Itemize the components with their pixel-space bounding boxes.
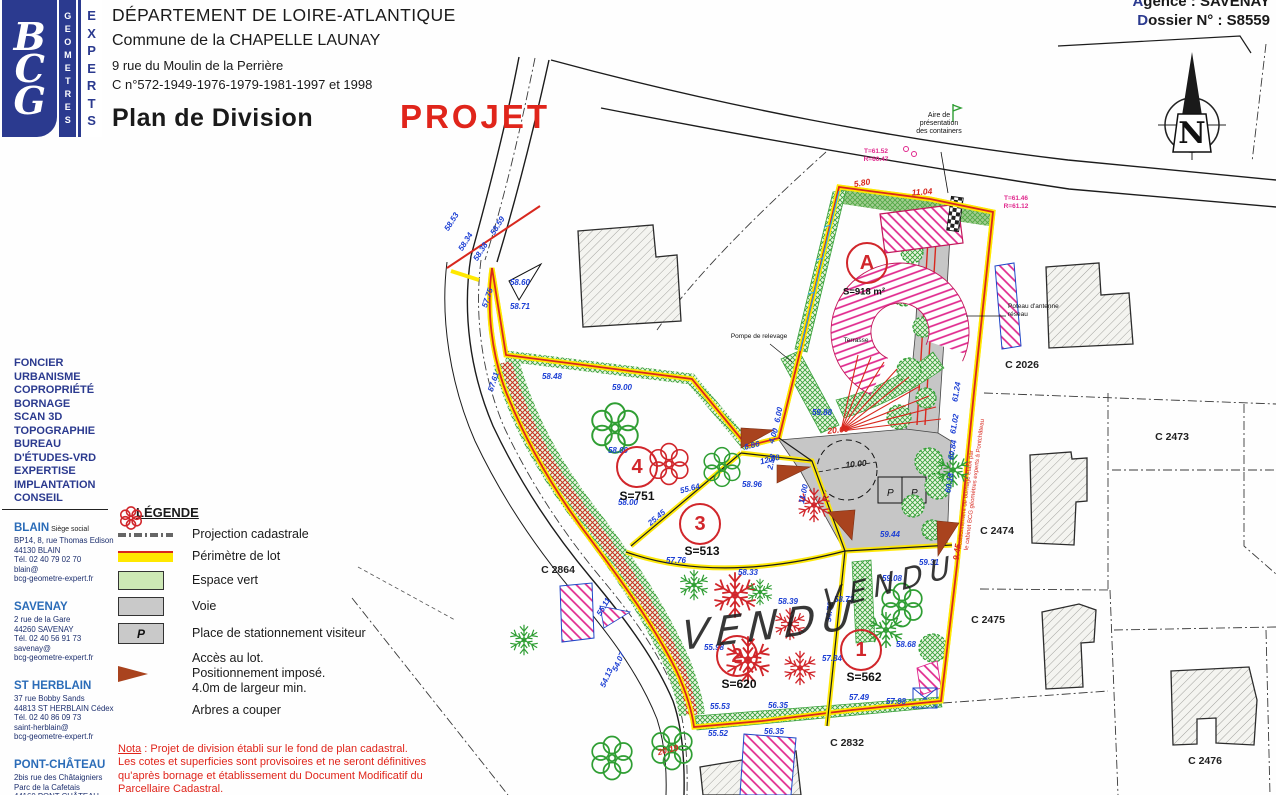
dimension-label: 59.88 [812, 409, 832, 417]
office-address-line: 37 rue Bobby Sands [14, 694, 114, 704]
sidebar-divider [2, 509, 108, 510]
legend-swatch-road [118, 597, 176, 616]
legend-item-label: Espace vert [192, 573, 258, 588]
parcel-label: C 2832 [830, 737, 864, 749]
parcel-label: C 2476 [1188, 755, 1222, 767]
logo-geometres-letter: R [65, 88, 72, 101]
legend-item: Espace vert [118, 571, 378, 590]
lot-number-3: 3 [679, 503, 721, 545]
nota-block: Nota : Projet de division établi sur le … [118, 729, 454, 795]
office-name: PONT-CHÂTEAU [14, 755, 114, 773]
site-address: 9 rue du Moulin de la Perrière [112, 58, 672, 73]
logo-geometres-letter: S [65, 114, 71, 127]
containers-area-label: Aire de présentation des containers [903, 112, 975, 136]
dimension-label: 61.24 [951, 381, 962, 402]
sidebar-service-item: SCAN 3D [14, 411, 114, 425]
legend-item-label: Place de stationnement visiteur [192, 626, 366, 641]
office-address-line: savenay@ [14, 644, 114, 654]
office-address-line: 44813 ST HERBLAIN Cédex [14, 704, 114, 714]
lot-number-A: A [846, 242, 888, 284]
office-address-line: bcg-geometre-expert.fr [14, 732, 114, 742]
lot-number-1: 1 [840, 629, 882, 671]
agency-label: Agence : SAVENAY [1132, 0, 1270, 10]
dimension-label: 5.80 [853, 177, 871, 188]
dimension-label: 20.19 [657, 743, 680, 756]
legend-item-label: Voie [192, 599, 216, 614]
office-address-line: 2bis rue des Châtaigniers [14, 773, 114, 783]
logo-geometres: GEOMETRES [59, 0, 76, 137]
dimension-label: 58.33 [738, 569, 758, 577]
dimension-label: R=61.12 [1004, 204, 1029, 211]
logo-geometres-letter: E [65, 23, 71, 36]
dimension-label: 55.53 [710, 703, 730, 711]
case-info: Agence : SAVENAY Dossier N° : S8559 [1132, 0, 1270, 31]
logo-experts: EXPERTS [78, 0, 102, 137]
office-address-line: bcg-geometre-expert.fr [14, 653, 114, 663]
dimension-label: 58.60 [510, 279, 530, 287]
parcel-label: C 2026 [1005, 359, 1039, 371]
office-address-line: bcg-geometre-expert.fr [14, 574, 114, 584]
legend-item: Projection cadastrale [118, 527, 378, 542]
office-address-line: 44130 BLAIN [14, 546, 114, 556]
office-address-line: 44260 SAVENAY [14, 625, 114, 635]
lot-area-label: S=751 [619, 489, 654, 503]
dimension-label: 57.76 [666, 557, 686, 565]
parcel-label: C 2474 [980, 525, 1014, 537]
dimension-label: 6.86 [743, 440, 760, 452]
bcg-logo: B C G GEOMETRES EXPERTS [2, 0, 102, 137]
dimension-label: 57.34 [822, 655, 842, 663]
dimension-label: 4.00 [768, 427, 780, 444]
legend-swatch-green [118, 571, 176, 590]
logo-geometres-letter: E [65, 62, 71, 75]
dossier-number: Dossier N° : S8559 [1132, 12, 1270, 29]
sidebar-service-item: D'ÉTUDES-VRD [14, 452, 114, 466]
vendu-annotation: VENDU [822, 548, 959, 618]
sidebar-service-item: IMPLANTATION [14, 479, 114, 493]
office-address-line: Parc de la Cafetais [14, 783, 114, 793]
logo-experts-letter: X [87, 25, 96, 43]
logo-geometres-letter: G [64, 10, 71, 23]
dimension-label: 20.00 [827, 425, 849, 436]
dimension-label: 58.38 [472, 241, 489, 262]
sidebar-service-item: BUREAU [14, 438, 114, 452]
sidebar-service-item: TOPOGRAPHIE [14, 425, 114, 439]
dimension-label: 58.48 [542, 373, 562, 381]
terrasse-label: Terrasse [836, 337, 876, 345]
office-address-line: blain@ [14, 565, 114, 575]
dimension-label: 58.34 [457, 231, 474, 252]
office-address-line: BP14, 8, rue Thomas Edison [14, 536, 114, 546]
office-address-line: saint-herblain@ [14, 723, 114, 733]
sidebar-service-item: FONCIER [14, 357, 114, 371]
logo-experts-letter: R [87, 77, 96, 95]
logo-experts-letter: E [87, 60, 96, 78]
commune-title: Commune de la CHAPELLE LAUNAY [112, 32, 672, 50]
lot-area-label: S=513 [684, 544, 719, 558]
legend-item-label: Périmètre de lot [192, 549, 280, 564]
pompe-label: Pompe de relevage [724, 333, 794, 341]
legend-title: LÉGENDE [136, 505, 378, 520]
dimension-label: 58.53 [443, 211, 460, 232]
department-title: DÉPARTEMENT DE LOIRE-ATLANTIQUE [112, 5, 672, 26]
cadastre-refs: C n°572-1949-1976-1979-1981-1997 et 1998 [112, 77, 672, 92]
dimension-label: 55.52 [708, 730, 728, 738]
dimension-label: 57.98 [886, 698, 906, 706]
office-address-line: Tél. 02 40 79 02 70 [14, 555, 114, 565]
sidebar-offices: BLAINSiège socialBP14, 8, rue Thomas Edi… [14, 518, 114, 795]
sidebar-services: FONCIERURBANISMECOPROPRIÉTÉBORNAGESCAN 3… [14, 357, 114, 506]
office-city: BLAIN [14, 522, 49, 534]
access-swatch-icon [118, 666, 148, 682]
dimension-label: 60.18 [944, 472, 955, 493]
cadastral-swatch-icon [118, 533, 173, 537]
legend-swatch-perimeter [118, 551, 176, 562]
dimension-label: 54.13 [599, 667, 614, 689]
legend: LÉGENDE Projection cadastralePérimètre d… [118, 505, 378, 725]
dimension-label: 55.64 [679, 483, 700, 496]
logo-experts-letter: T [88, 95, 96, 113]
logo-experts-letter: P [87, 42, 96, 60]
sidebar-service-item: URBANISME [14, 371, 114, 385]
parcel-label: C 2475 [971, 614, 1005, 626]
legend-items: Projection cadastralePérimètre de lotEsp… [118, 527, 378, 718]
dimension-label: 55.11 [596, 597, 613, 618]
parcel-label: C 2864 [541, 564, 575, 576]
office-address-line: Tél. 02 40 86 09 73 [14, 713, 114, 723]
dimension-label: 58.71 [510, 303, 530, 311]
sidebar-service-item: BORNAGE [14, 398, 114, 412]
dimension-label: 57.75 [481, 287, 495, 309]
tree-to-cut-icon [118, 505, 144, 531]
sidebar-service-item: COPROPRIÉTÉ [14, 384, 114, 398]
office-block: ST HERBLAIN37 rue Bobby Sands44813 ST HE… [14, 676, 114, 742]
dimension-label: R=60.47 [864, 157, 889, 164]
office-city: ST HERBLAIN [14, 680, 91, 692]
plan-de-division-page: P P [0, 0, 1276, 795]
green-swatch-icon [118, 571, 164, 590]
office-block: BLAINSiège socialBP14, 8, rue Thomas Edi… [14, 518, 114, 584]
office-city: SAVENAY [14, 601, 68, 613]
office-name: BLAINSiège social [14, 518, 114, 536]
dimension-label: 61.02 [949, 413, 960, 434]
logo-geometres-letter: M [64, 49, 72, 62]
road-swatch-icon [118, 597, 164, 616]
dimension-label: 10.00 [845, 459, 867, 470]
office-city: PONT-CHÂTEAU [14, 759, 105, 771]
poteau-label: Poteau d'antenne réseau [1008, 303, 1072, 319]
parking-swatch-icon: P [118, 623, 164, 644]
logo-geometres-letter: E [65, 101, 71, 114]
office-block: PONT-CHÂTEAU2bis rue des ChâtaigniersPar… [14, 755, 114, 795]
projet-stamp: PROJET [400, 98, 550, 136]
dimension-label: 57.61 [487, 371, 501, 393]
legend-swatch-access [118, 666, 176, 682]
sidebar-service-item: EXPERTISE [14, 465, 114, 479]
lot-number-4: 4 [616, 446, 658, 488]
title-block: DÉPARTEMENT DE LOIRE-ATLANTIQUE Commune … [112, 5, 672, 133]
lot-area-label: S=918 m² [843, 287, 885, 298]
dimension-label: T=61.52 [864, 149, 888, 156]
legend-item: PPlace de stationnement visiteur [118, 623, 378, 644]
office-name: SAVENAY [14, 597, 114, 615]
dimension-label: T=61.46 [1004, 196, 1028, 203]
logo-letter-g: G [13, 85, 45, 117]
legend-item: Périmètre de lot [118, 549, 378, 564]
page-title: Plan de Division [112, 104, 672, 133]
legend-swatch-cadastral [118, 533, 176, 537]
dimension-label: 58.68 [896, 641, 916, 649]
perimeter-swatch-icon [118, 551, 173, 562]
office-tag: Siège social [51, 526, 89, 533]
lot-area-label: S=562 [846, 670, 881, 684]
nota-text: : Projet de division établi sur le fond … [118, 743, 426, 795]
dimension-label: 57.49 [849, 694, 869, 702]
dimension-label: 58.96 [742, 481, 762, 489]
dimension-label: 59.44 [880, 531, 900, 539]
bcg-logo-letters: B C G [2, 0, 57, 137]
dimension-label: 25.45 [647, 508, 667, 527]
dimension-label: 56.35 [768, 702, 788, 710]
legend-item-label: Arbres a couper [192, 703, 281, 718]
logo-geometres-letter: O [64, 36, 71, 49]
logo-experts-letter: E [87, 7, 96, 25]
legend-item: Accès au lot. Positionnement imposé. 4.0… [118, 651, 378, 696]
legend-item-label: Accès au lot. Positionnement imposé. 4.0… [192, 651, 325, 696]
dimension-label: 2.58 [766, 454, 777, 471]
legend-item: Arbres a couper [118, 703, 378, 718]
dimension-label: 60.84 [947, 439, 958, 460]
dimension-label: 58.59 [489, 215, 506, 236]
parcel-label: C 2473 [1155, 431, 1189, 443]
dimension-label: 11.04 [911, 187, 932, 197]
legend-item: Voie [118, 597, 378, 616]
dimension-label: 56.35 [764, 728, 784, 736]
office-address-line: Tél. 02 40 56 91 73 [14, 634, 114, 644]
office-name: ST HERBLAIN [14, 676, 114, 694]
dimension-label: 11.00 [798, 484, 810, 505]
logo-experts-letter: S [87, 112, 96, 130]
nota-label: Nota [118, 743, 141, 755]
legend-swatch-parking: P [118, 623, 176, 644]
office-block: SAVENAY2 rue de la Gare44260 SAVENAYTél.… [14, 597, 114, 663]
sidebar-service-item: CONSEIL [14, 492, 114, 506]
legend-item-label: Projection cadastrale [192, 527, 309, 542]
dimension-label: 59.00 [612, 384, 632, 392]
logo-geometres-letter: T [65, 75, 71, 88]
lot-area-label: S=620 [721, 677, 756, 691]
dimension-label: 6.00 [773, 407, 784, 424]
office-address-line: 2 rue de la Gare [14, 615, 114, 625]
